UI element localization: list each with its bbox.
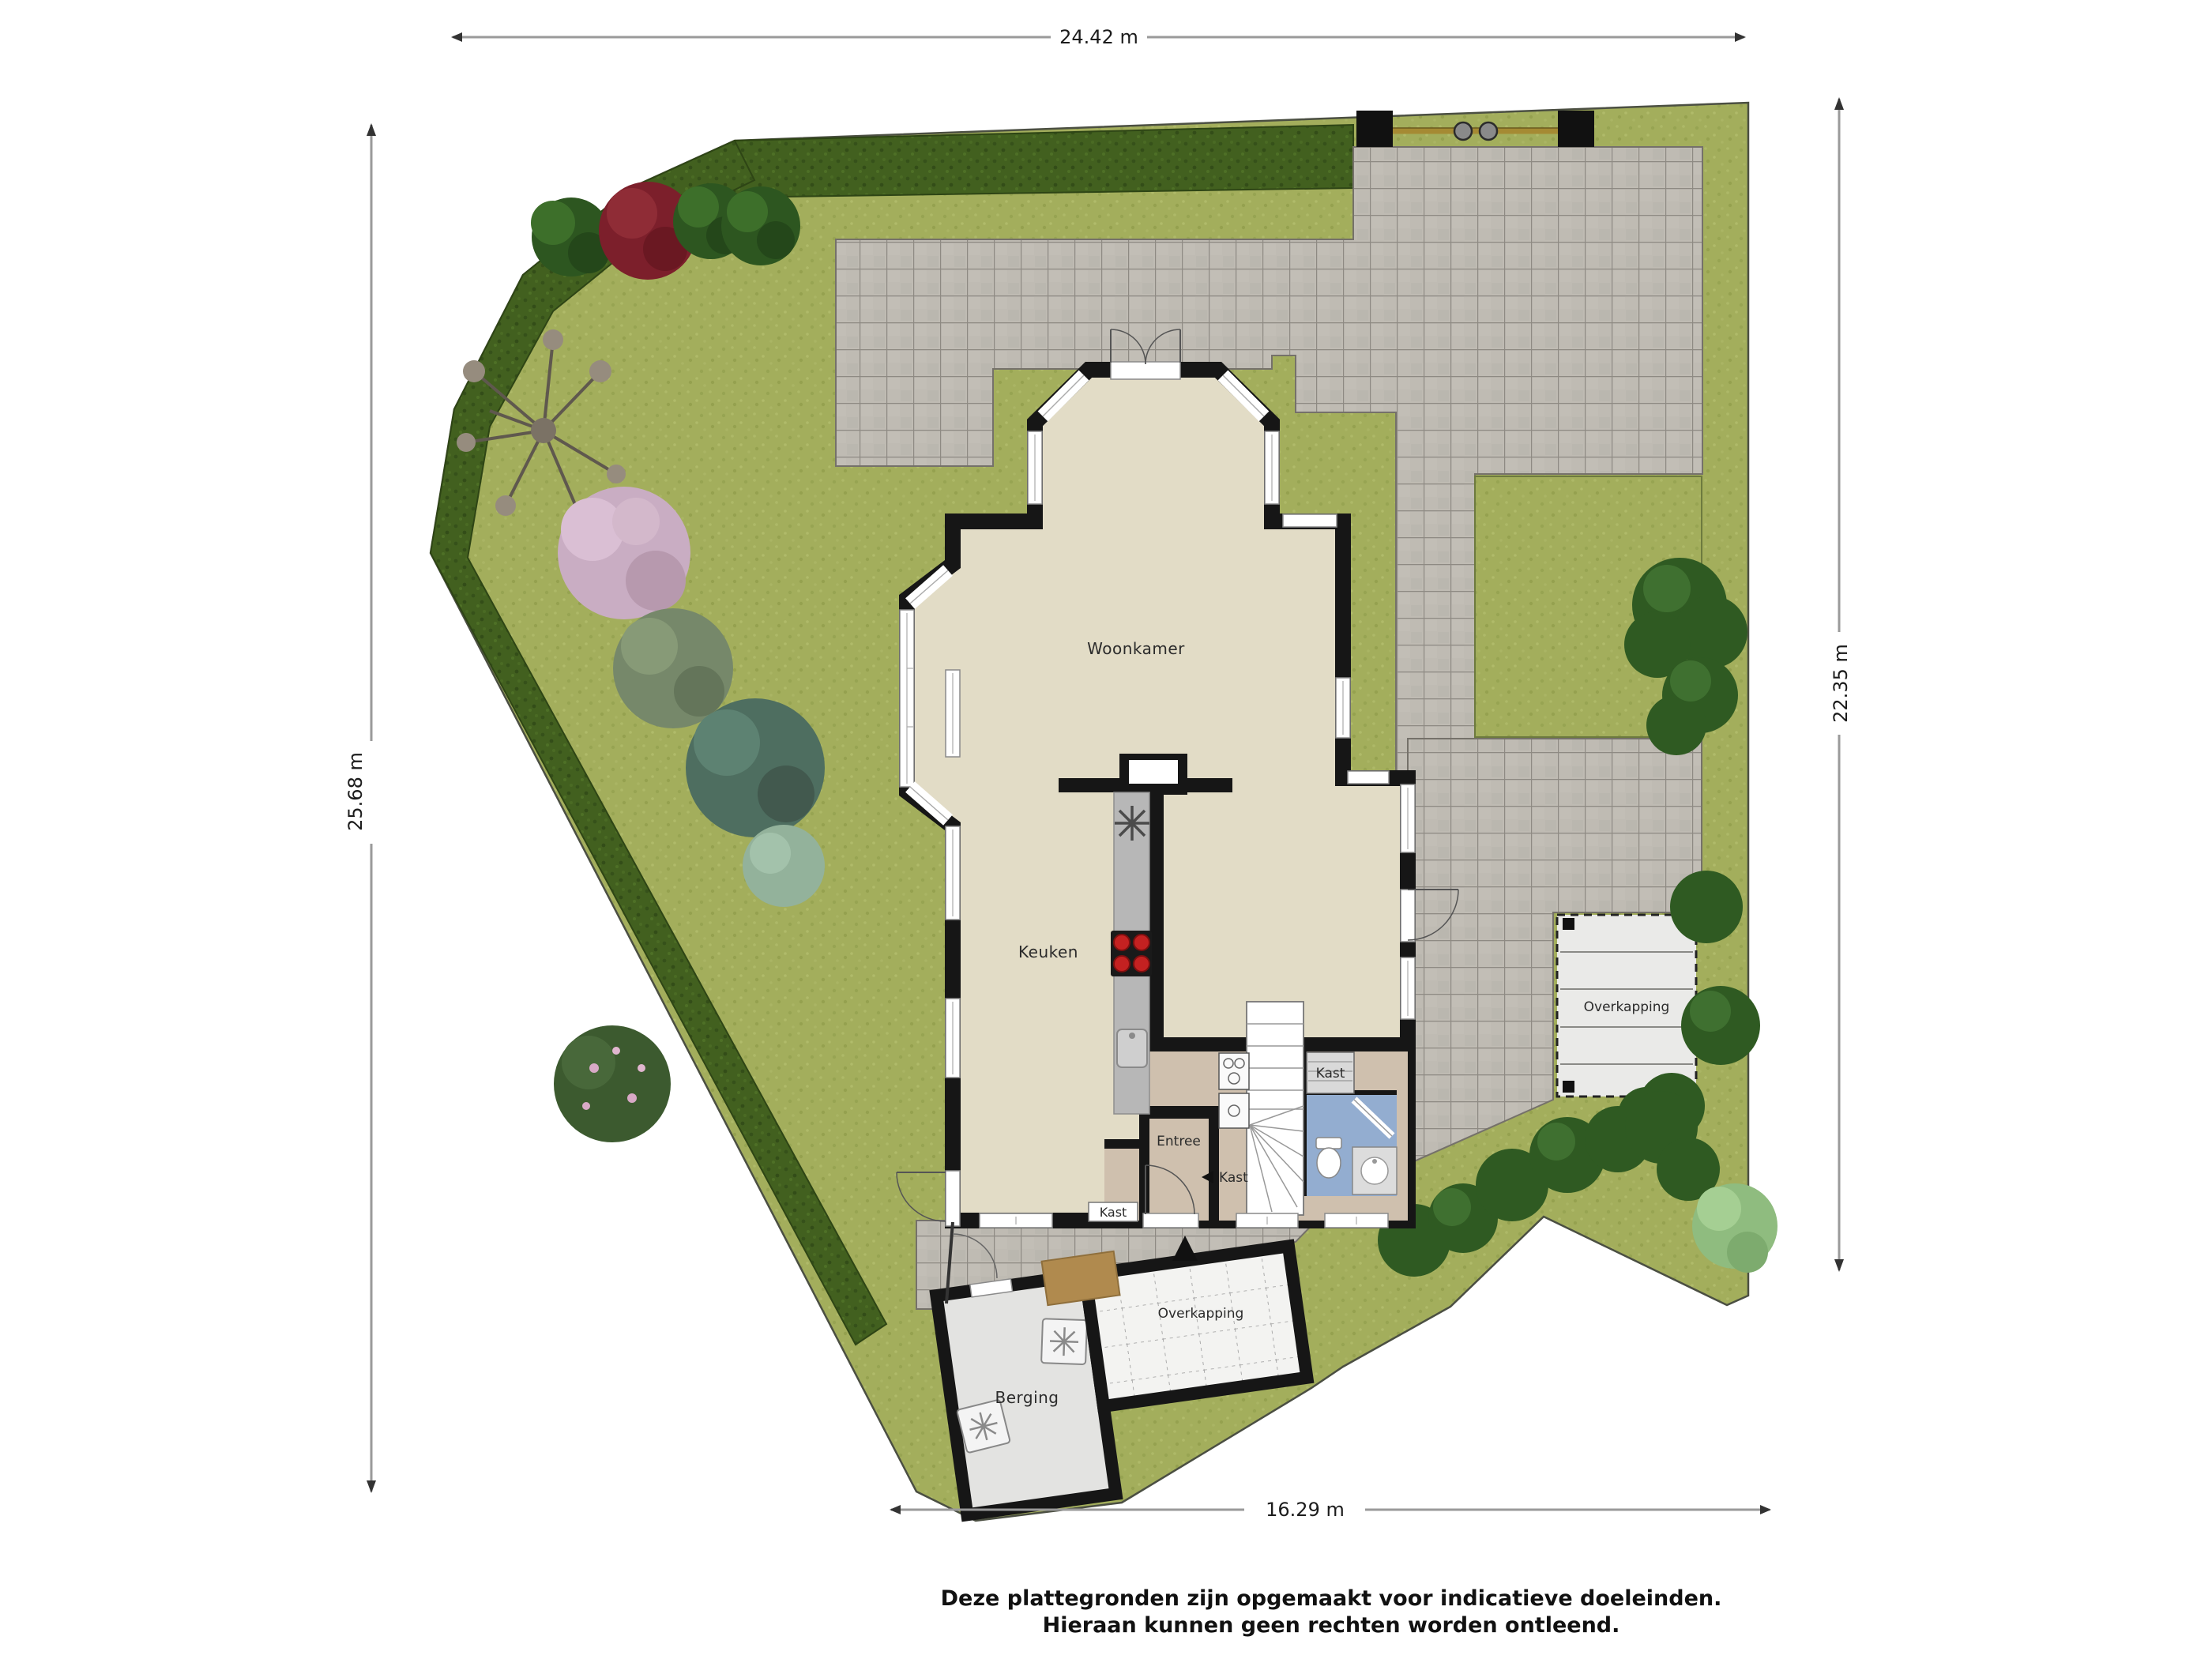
toilet-icon: [1316, 1138, 1341, 1178]
blossom-tree-icon: [554, 1025, 671, 1142]
bathroom: [1307, 1095, 1397, 1196]
gate-hinge-icon: [1454, 122, 1472, 140]
closet-kast: Kast: [1307, 1052, 1354, 1093]
bush-icon: [721, 186, 800, 265]
flue: [1119, 754, 1187, 795]
berging-label: Berging: [995, 1388, 1059, 1407]
kitchen-counter: [1111, 792, 1152, 1114]
dim-right-text: 22.35 m: [1830, 644, 1852, 723]
tree-icon: [613, 608, 733, 728]
canopy-post: [1563, 918, 1574, 930]
cooktop-icon: [1111, 931, 1152, 976]
washbasin-icon: [1352, 1147, 1397, 1194]
kast-pill: Kast: [1089, 1202, 1138, 1221]
canopy-post: [1563, 1081, 1574, 1093]
dim-bottom-text: 16.29 m: [1266, 1499, 1345, 1521]
canopy-right-label: Overkapping: [1584, 999, 1670, 1015]
keuken-label: Keuken: [1018, 942, 1078, 961]
stairs-kast-label: Kast: [1219, 1170, 1248, 1186]
tree-icon: [686, 698, 825, 837]
kast-label: Kast: [1316, 1066, 1345, 1082]
kast-label: Kast: [1100, 1205, 1127, 1220]
disclaimer-line1: Deze plattegronden zijn opgemaakt voor i…: [941, 1586, 1722, 1611]
woonkamer-label: Woonkamer: [1087, 639, 1185, 658]
washer-icon: [957, 1399, 1010, 1453]
extractor-fan-icon: [1115, 806, 1149, 841]
bush-icon: [743, 825, 825, 907]
dimension-top: 24.42 m: [451, 26, 1746, 48]
canopy-right: Overkapping: [1557, 915, 1696, 1097]
canopy-bottom: [1085, 1246, 1307, 1406]
doormat: [1042, 1251, 1120, 1305]
floorplan-page: Overkapping: [0, 0, 2212, 1659]
dim-top-text: 24.42 m: [1059, 26, 1138, 48]
dimension-left: 25.68 m: [344, 123, 376, 1493]
gate-hinge-icon: [1480, 122, 1497, 140]
site-plan: Overkapping: [0, 0, 2212, 1659]
canopy-bottom-label: Overkapping: [1158, 1306, 1244, 1322]
entree-label: Entree: [1157, 1134, 1201, 1149]
gate-post: [1558, 111, 1594, 147]
blossom-tree-icon: [558, 487, 690, 619]
dim-left-text: 25.68 m: [344, 752, 367, 831]
gate-post: [1356, 111, 1393, 147]
washer-icon: [1041, 1319, 1087, 1364]
sink-icon: [1117, 1029, 1147, 1067]
dimension-right: 22.35 m: [1830, 97, 1852, 1272]
hedge-top: [735, 125, 1353, 197]
disclaimer-line2: Hieraan kunnen geen rechten worden ontle…: [1043, 1613, 1620, 1638]
disclaimer: Deze plattegronden zijn opgemaakt voor i…: [941, 1586, 1722, 1638]
